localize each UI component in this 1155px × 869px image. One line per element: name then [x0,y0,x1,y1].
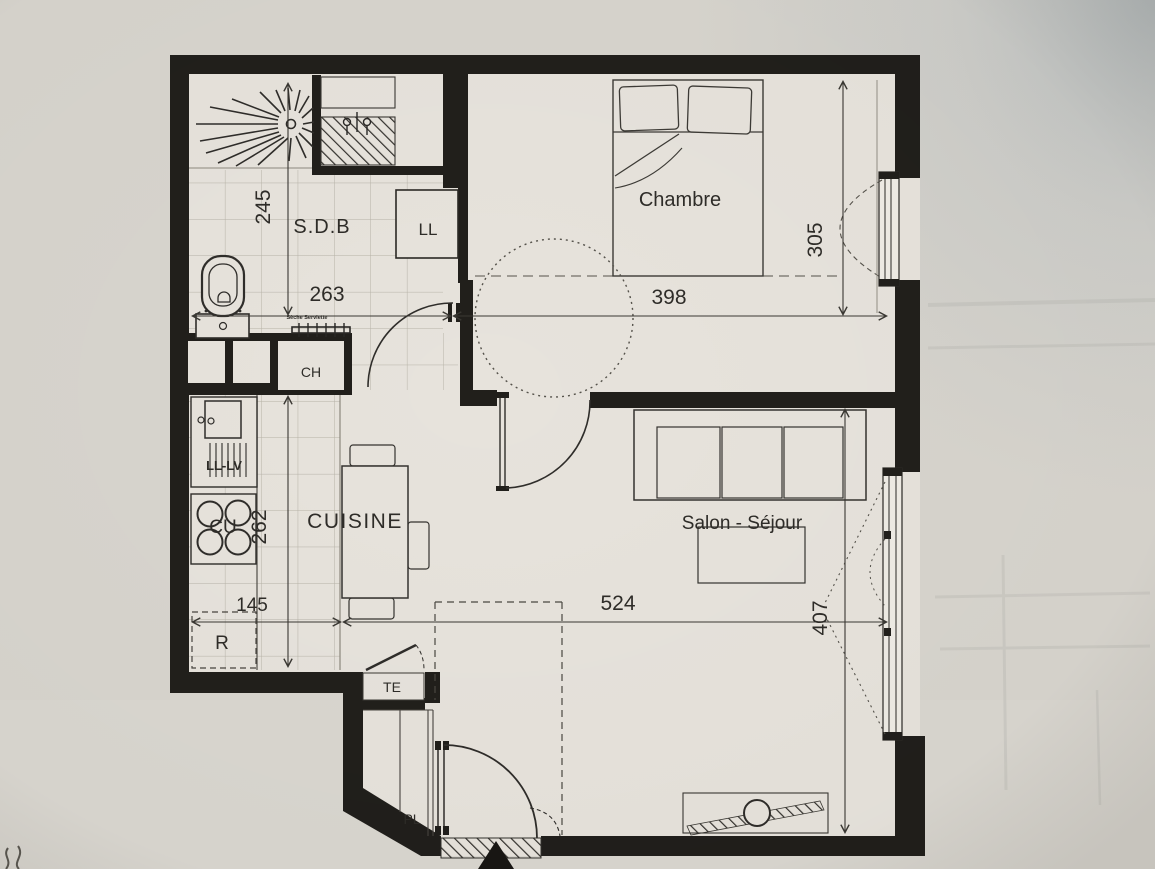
floor-plan-photo: S.D.B Chambre CUISINE Salon - Séjour LL … [0,0,1155,869]
photo-vignette [0,0,1155,869]
floor-plan-svg: S.D.B Chambre CUISINE Salon - Séjour LL … [0,0,1155,869]
